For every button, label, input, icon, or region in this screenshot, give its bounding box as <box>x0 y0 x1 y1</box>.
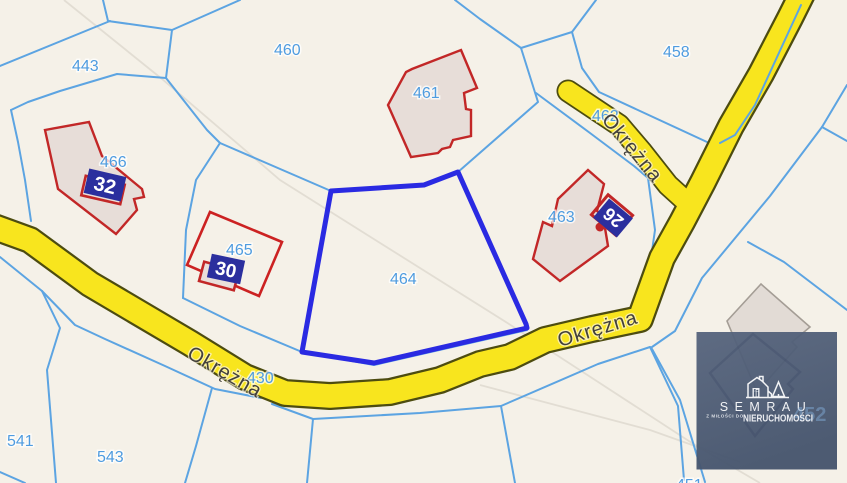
svg-text:465: 465 <box>226 242 253 259</box>
svg-text:443: 443 <box>72 58 99 75</box>
svg-text:541: 541 <box>7 433 34 450</box>
svg-text:Z MIŁOŚCI DO: Z MIŁOŚCI DO <box>706 413 743 419</box>
svg-text:543: 543 <box>97 449 124 466</box>
svg-text:NIERUCHOMOŚCI: NIERUCHOMOŚCI <box>743 412 813 425</box>
svg-text:451: 451 <box>676 477 703 483</box>
svg-text:30: 30 <box>213 258 238 283</box>
svg-text:461: 461 <box>413 85 440 102</box>
svg-text:458: 458 <box>663 44 690 61</box>
svg-text:466: 466 <box>100 154 127 171</box>
svg-text:460: 460 <box>274 42 301 59</box>
svg-text:463: 463 <box>548 209 575 226</box>
svg-text:464: 464 <box>390 271 417 288</box>
